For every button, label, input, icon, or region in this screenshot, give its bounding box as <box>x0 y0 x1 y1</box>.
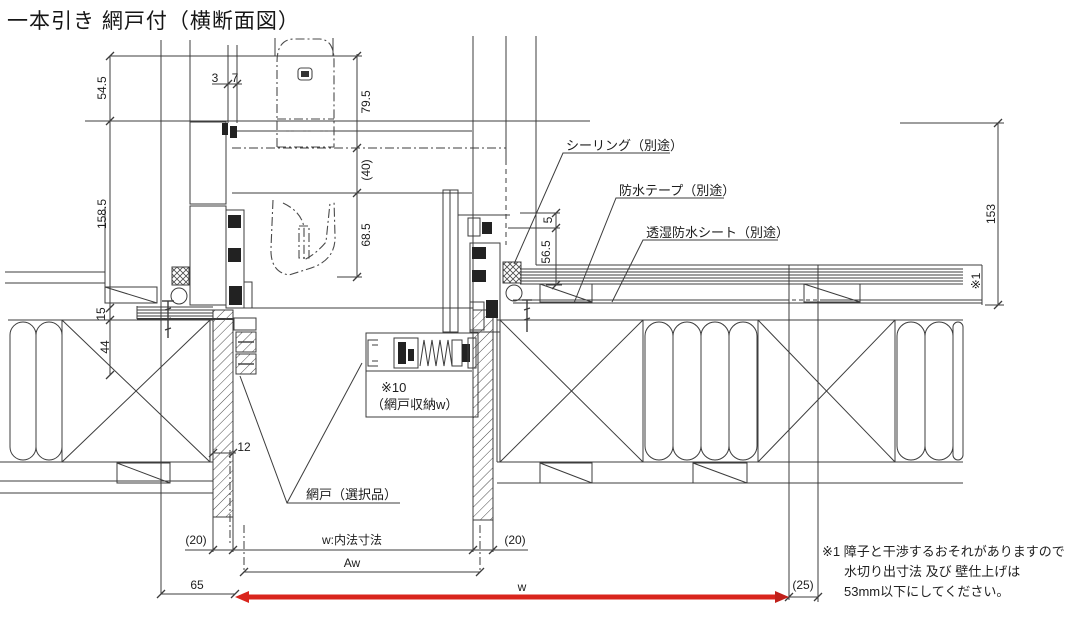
left-jamb-frame <box>162 122 256 374</box>
footnote-line-3: 53mm以下にしてください。 <box>844 581 1009 600</box>
screw <box>522 300 532 332</box>
dimension-ticks <box>106 52 1002 601</box>
dim-20-right: (20) <box>504 534 525 546</box>
dim-5: 5 <box>542 217 554 224</box>
dim-w-inner: w:内法寸法 <box>322 534 382 546</box>
callout-tape: 防水テープ（別途） <box>619 184 735 197</box>
callout-screen: 網戸（選択品） <box>306 488 397 501</box>
insulation-batt <box>645 322 757 460</box>
ref-mark-wall: ※1 <box>970 273 982 290</box>
callout-pocket-label: （網戸収納w） <box>371 398 458 411</box>
spring <box>420 340 452 366</box>
right-wall-section <box>473 265 982 520</box>
dim-79-5: 79.5 <box>360 90 372 113</box>
cad-drawing-canvas <box>0 0 1083 618</box>
w-dimension-red-line <box>235 591 789 603</box>
stud-section <box>758 320 895 462</box>
footnote-line-1: ※1 障子と干渉するおそれがありますので <box>822 541 1065 560</box>
leader-screen-right <box>287 363 362 503</box>
dim-158-5: 158.5 <box>96 199 108 229</box>
handle-phantom <box>271 39 335 275</box>
leader-sealing <box>514 153 670 264</box>
dim-15: 15 <box>95 307 107 320</box>
leader-screen-left <box>240 376 400 503</box>
dim-7: 7 <box>232 72 239 84</box>
callout-sealing: シーリング（別途） <box>566 139 683 152</box>
dim-54-5: 54.5 <box>96 76 108 99</box>
dim-aw: Aw <box>344 557 360 569</box>
dim-20-left: (20) <box>185 534 206 546</box>
leader-tape <box>574 198 724 303</box>
backer-rod <box>506 285 522 301</box>
dim-40: (40) <box>360 159 372 180</box>
callout-pocket-ref: ※10 <box>381 381 406 394</box>
right-jamb-frame <box>443 190 532 332</box>
dim-w: w <box>518 581 527 593</box>
dim-56-5: 56.5 <box>540 240 552 263</box>
dim-65: 65 <box>190 579 203 591</box>
insulation-batt <box>897 322 963 460</box>
insulation-batt <box>10 322 62 460</box>
footnote-line-2: 水切り出寸法 及び 壁仕上げは <box>844 561 1020 580</box>
jamb-furring-hatched <box>213 310 233 517</box>
leader-sheet <box>612 240 778 302</box>
callout-sheet: 透湿防水シート（別途） <box>646 226 789 239</box>
drawing-sheet: 一本引き 網戸付（横断面図） 54.5 158.5 15 44 79.5 (40… <box>0 0 1083 618</box>
left-wall-section <box>0 207 233 517</box>
drawing-title: 一本引き 網戸付（横断面図） <box>7 5 300 35</box>
sealant-section <box>172 267 189 285</box>
stud-section <box>62 320 210 462</box>
dim-68-5: 68.5 <box>360 223 372 246</box>
stud-section <box>500 320 643 462</box>
dim-153: 153 <box>985 204 997 224</box>
dim-44: 44 <box>99 340 111 353</box>
leader-lines <box>240 153 778 503</box>
sealant-section <box>503 262 521 283</box>
dim-25: (25) <box>792 579 813 591</box>
dim-3: 3 <box>212 72 219 84</box>
dim-12: 12 <box>237 441 250 453</box>
